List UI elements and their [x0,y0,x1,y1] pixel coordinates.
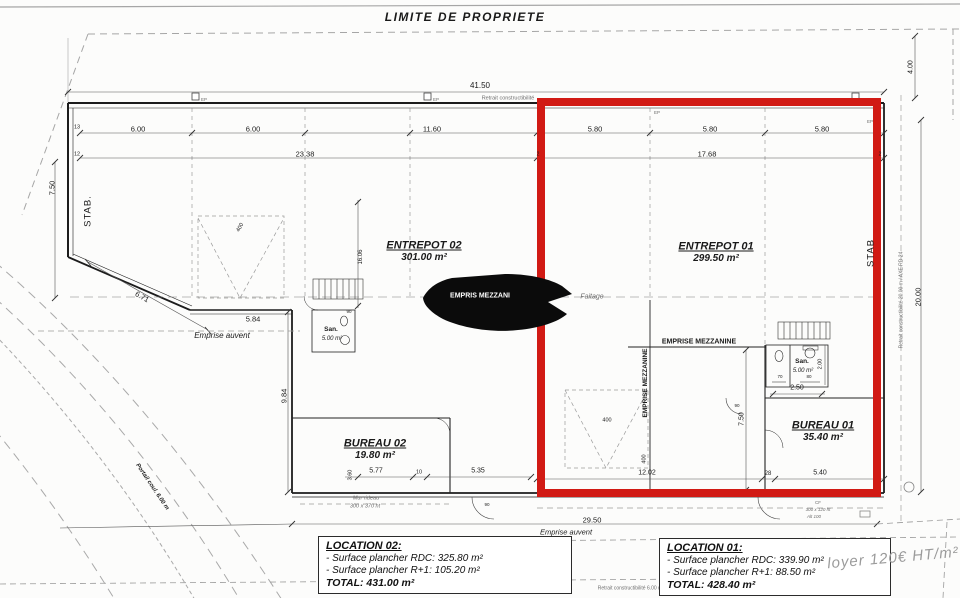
room-entrepot01-area: 299.50 m² [693,254,739,264]
dim-2000: 20.00 [914,288,922,307]
dim-90b: 90 [484,503,489,508]
dim-250: 2.50 [790,385,804,392]
location02-box: LOCATION 02: - Surface plancher RDC: 325… [318,536,572,594]
label-retrait-bottom: Retrait constructibilité 6.00 m [598,587,662,592]
dim-580a: 5.80 [588,125,603,133]
room-bureau02-area: 19.80 m² [355,451,395,461]
location02-line-rdc: - Surface plancher RDC: 325.80 m² [326,553,564,564]
dim-2950: 29.50 [583,516,602,524]
room-bureau02-name: BUREAU 02 [344,439,406,450]
dim-750-left: 7.50 [48,181,56,196]
label-emprise-mezzanine-h: EMPRISE MEZZANINE [662,339,736,346]
label-cf-2: 300 x 120 ht [806,508,831,513]
road-curves [0,262,282,598]
dim-400c: 400 [642,454,648,463]
room-entrepot01-name: ENTREPOT 01 [678,242,753,253]
dim-577: 5.77 [369,468,383,475]
label-ep-2: EP [433,98,439,103]
label-cf-3: Alt 100 [807,515,821,520]
dim-540: 5.40 [813,470,827,477]
dim-1202: 12.02 [638,470,656,477]
label-emprise-mezzanine-covered: EMPRIS MEZZANI [450,293,510,300]
dim-1606: 16.06 [358,249,364,264]
label-emprise-auvent-left: Emprise auvent [194,332,250,340]
label-emprise-mezzanine-v: EMPRISE MEZZANINE [643,349,650,418]
dim-90a: 90 [346,310,351,315]
dim-overall: 41.50 [470,82,490,90]
location02-title: LOCATION 02: [326,540,564,552]
dim-360: 3.60 [348,470,354,481]
label-ep-4: EP [867,120,873,125]
redaction-blob [423,274,572,331]
dim-400b: 400 [602,418,611,424]
dim-2338: 23.38 [296,150,315,158]
room-entrepot02-name: ENTREPOT 02 [386,241,461,252]
dim-2b: 2 [879,153,882,158]
location02-line-r1: - Surface plancher R+1: 105.20 m² [326,565,564,576]
label-emprise-auvent-bottom: Emprise auvent [540,528,592,536]
dim-600b: 6.00 [246,125,261,133]
location01-total: TOTAL: 428.40 m² [667,579,883,591]
dim-2a: 2 [537,153,540,158]
partitions [292,300,884,493]
room-entrepot02-area: 301.00 m² [401,253,447,263]
stairs [313,279,830,339]
dim-200: 2.00 [818,359,824,370]
dim-584: 5.84 [246,315,261,323]
dim-028: 28 [765,471,772,477]
location02-total: TOTAL: 431.00 m² [326,577,564,589]
label-stab-left: STAB. [83,195,93,227]
dim-1160: 11.60 [423,125,441,133]
property-lines [0,4,960,215]
room-san02-name: San. [324,327,338,334]
room-san02-area: 5.00 m² [322,336,342,342]
dim-010: 10 [416,470,422,476]
dim-984: 9.84 [280,389,288,404]
label-faitage: Faitage [580,294,603,301]
room-bureau01-area: 35.40 m² [803,433,843,443]
label-ep-1: EP [201,98,207,103]
label-stab-right: STAB [866,239,876,267]
dim-70: 70 [777,375,782,380]
room-san01-name: San. [795,359,809,366]
label-retrait-top: Retrait constructibilité [482,96,535,102]
dim-600a: 6.00 [131,125,146,133]
door-arcs [472,398,780,519]
drawing-title: LIMITE DE PROPRIETE [385,11,546,23]
dim-1768: 17.68 [698,150,717,158]
label-mur-rideau-2: 300 x 370 ht [350,504,380,510]
room-bureau01-name: BUREAU 01 [792,421,854,432]
label-mur-rideau-1: Mur rideau [353,496,379,502]
label-cf-1: CF [815,501,821,506]
dim-90c: 90 [734,404,739,409]
dim-750-right: 7.50 [739,412,746,426]
dim-535: 5.35 [471,468,485,475]
sanitary-rooms [304,296,828,387]
dim-580b: 5.80 [703,125,718,133]
dim-580c: 5.80 [815,125,830,133]
misc-symbols [860,482,914,517]
label-ep-3: EP [654,111,660,116]
floor-plan-canvas: LIMITE DE PROPRIETE ENTREPOT 02 301.00 m… [0,0,960,598]
dim-13: 13 [74,125,80,131]
dim-400tr: 4.00 [908,60,915,74]
dim-12: 12 [74,152,80,158]
label-retrait-right: Retrait constructibilité 20.00 m / AXE R… [900,252,905,349]
dim-80: 80 [806,375,811,380]
